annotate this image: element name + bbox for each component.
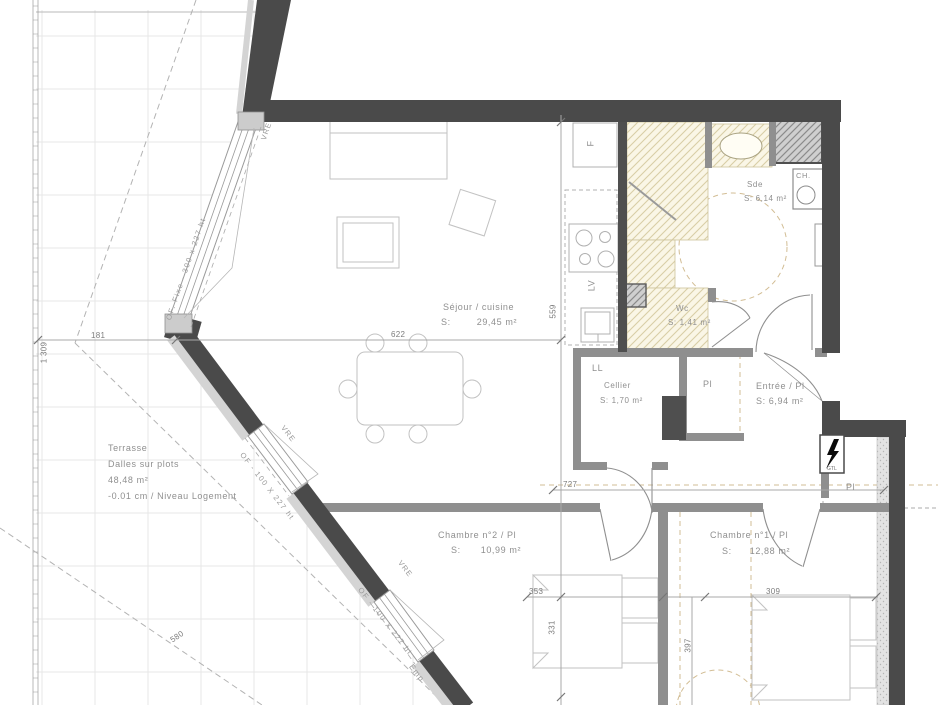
dining-chair <box>463 380 481 398</box>
water-heater-label: CH. <box>796 170 811 181</box>
area-prefix: S: <box>722 546 732 556</box>
area-prefix: S: <box>451 545 461 555</box>
terrasse-note2: -0.01 cm / Niveau Logement <box>108 491 237 502</box>
dining-chair <box>409 425 427 443</box>
chambre2-area: S:10,99 m² <box>451 545 521 556</box>
entree-area: S: 6,94 m² <box>756 396 804 407</box>
dim-622: 622 <box>391 329 405 340</box>
dim-1309: 1 309 <box>39 335 50 371</box>
fridge-label: F <box>586 140 597 146</box>
sofa <box>330 114 447 179</box>
insulation-band <box>877 437 889 705</box>
door-sde <box>756 294 812 352</box>
dim-331: 331 <box>547 613 558 643</box>
dining-chair <box>409 334 427 352</box>
dim-353: 353 <box>529 586 543 597</box>
wc-name: Wc <box>676 303 689 314</box>
radiator <box>815 224 823 266</box>
dining-chair <box>366 425 384 443</box>
dim-559: 559 <box>548 297 559 327</box>
sejour-name: Séjour / cuisine <box>443 302 514 313</box>
coffee-table <box>337 217 399 268</box>
bedroom1-bed <box>752 595 876 700</box>
door-entry <box>764 353 822 401</box>
chambre1-name: Chambre n°1 / Pl <box>710 530 788 541</box>
technical-shaft <box>775 120 822 163</box>
chambre2-name: Chambre n°2 / Pl <box>438 530 516 541</box>
armchair <box>449 189 496 236</box>
area-prefix: S: <box>441 317 451 327</box>
dishwasher-label: LV <box>586 280 597 292</box>
closet-nook-label: Pl <box>846 482 855 493</box>
wc-area: S: 1,41 m² <box>668 317 711 328</box>
washbasin <box>720 133 762 159</box>
dim-727: 727 <box>563 479 577 490</box>
entree-name: Entrée / Pl <box>756 381 805 392</box>
plan-drawing <box>0 0 940 705</box>
area-value: 29,45 m² <box>477 317 517 328</box>
sejour-area: S:29,45 m² <box>441 317 517 328</box>
terrasse-name: Terrasse <box>108 443 147 454</box>
closet-label: Pl <box>703 379 712 390</box>
hob <box>569 224 618 272</box>
area-value: 12,88 m² <box>750 546 790 557</box>
dim-181: 181 <box>91 330 105 341</box>
door-wc <box>712 302 750 347</box>
left-ruler <box>33 0 38 705</box>
dining-table <box>357 352 463 425</box>
washing-machine-label: LL <box>592 363 603 374</box>
floor-plan: Séjour / cuisine S:29,45 m² Terrasse Dal… <box>0 0 940 705</box>
terrasse-area: 48,48 m² <box>108 475 148 486</box>
cellier-name: Cellier <box>604 380 631 391</box>
door-chambre2 <box>600 509 652 561</box>
dining-chair <box>366 334 384 352</box>
kitchen-units <box>565 123 618 345</box>
cellier-area: S: 1,70 m² <box>600 395 643 406</box>
dim-397: 397 <box>683 631 694 661</box>
dim-309: 309 <box>766 586 780 597</box>
chambre1-area: S:12,88 m² <box>722 546 790 557</box>
terrasse-note1: Dalles sur plots <box>108 459 179 470</box>
living-furniture <box>330 114 496 443</box>
sde-area: S: 6,14 m² <box>744 193 787 204</box>
area-value: 10,99 m² <box>481 545 521 556</box>
sde-name: Sde <box>747 179 763 190</box>
elec-duct-label: GTL <box>827 464 837 475</box>
dining-chair <box>339 380 357 398</box>
